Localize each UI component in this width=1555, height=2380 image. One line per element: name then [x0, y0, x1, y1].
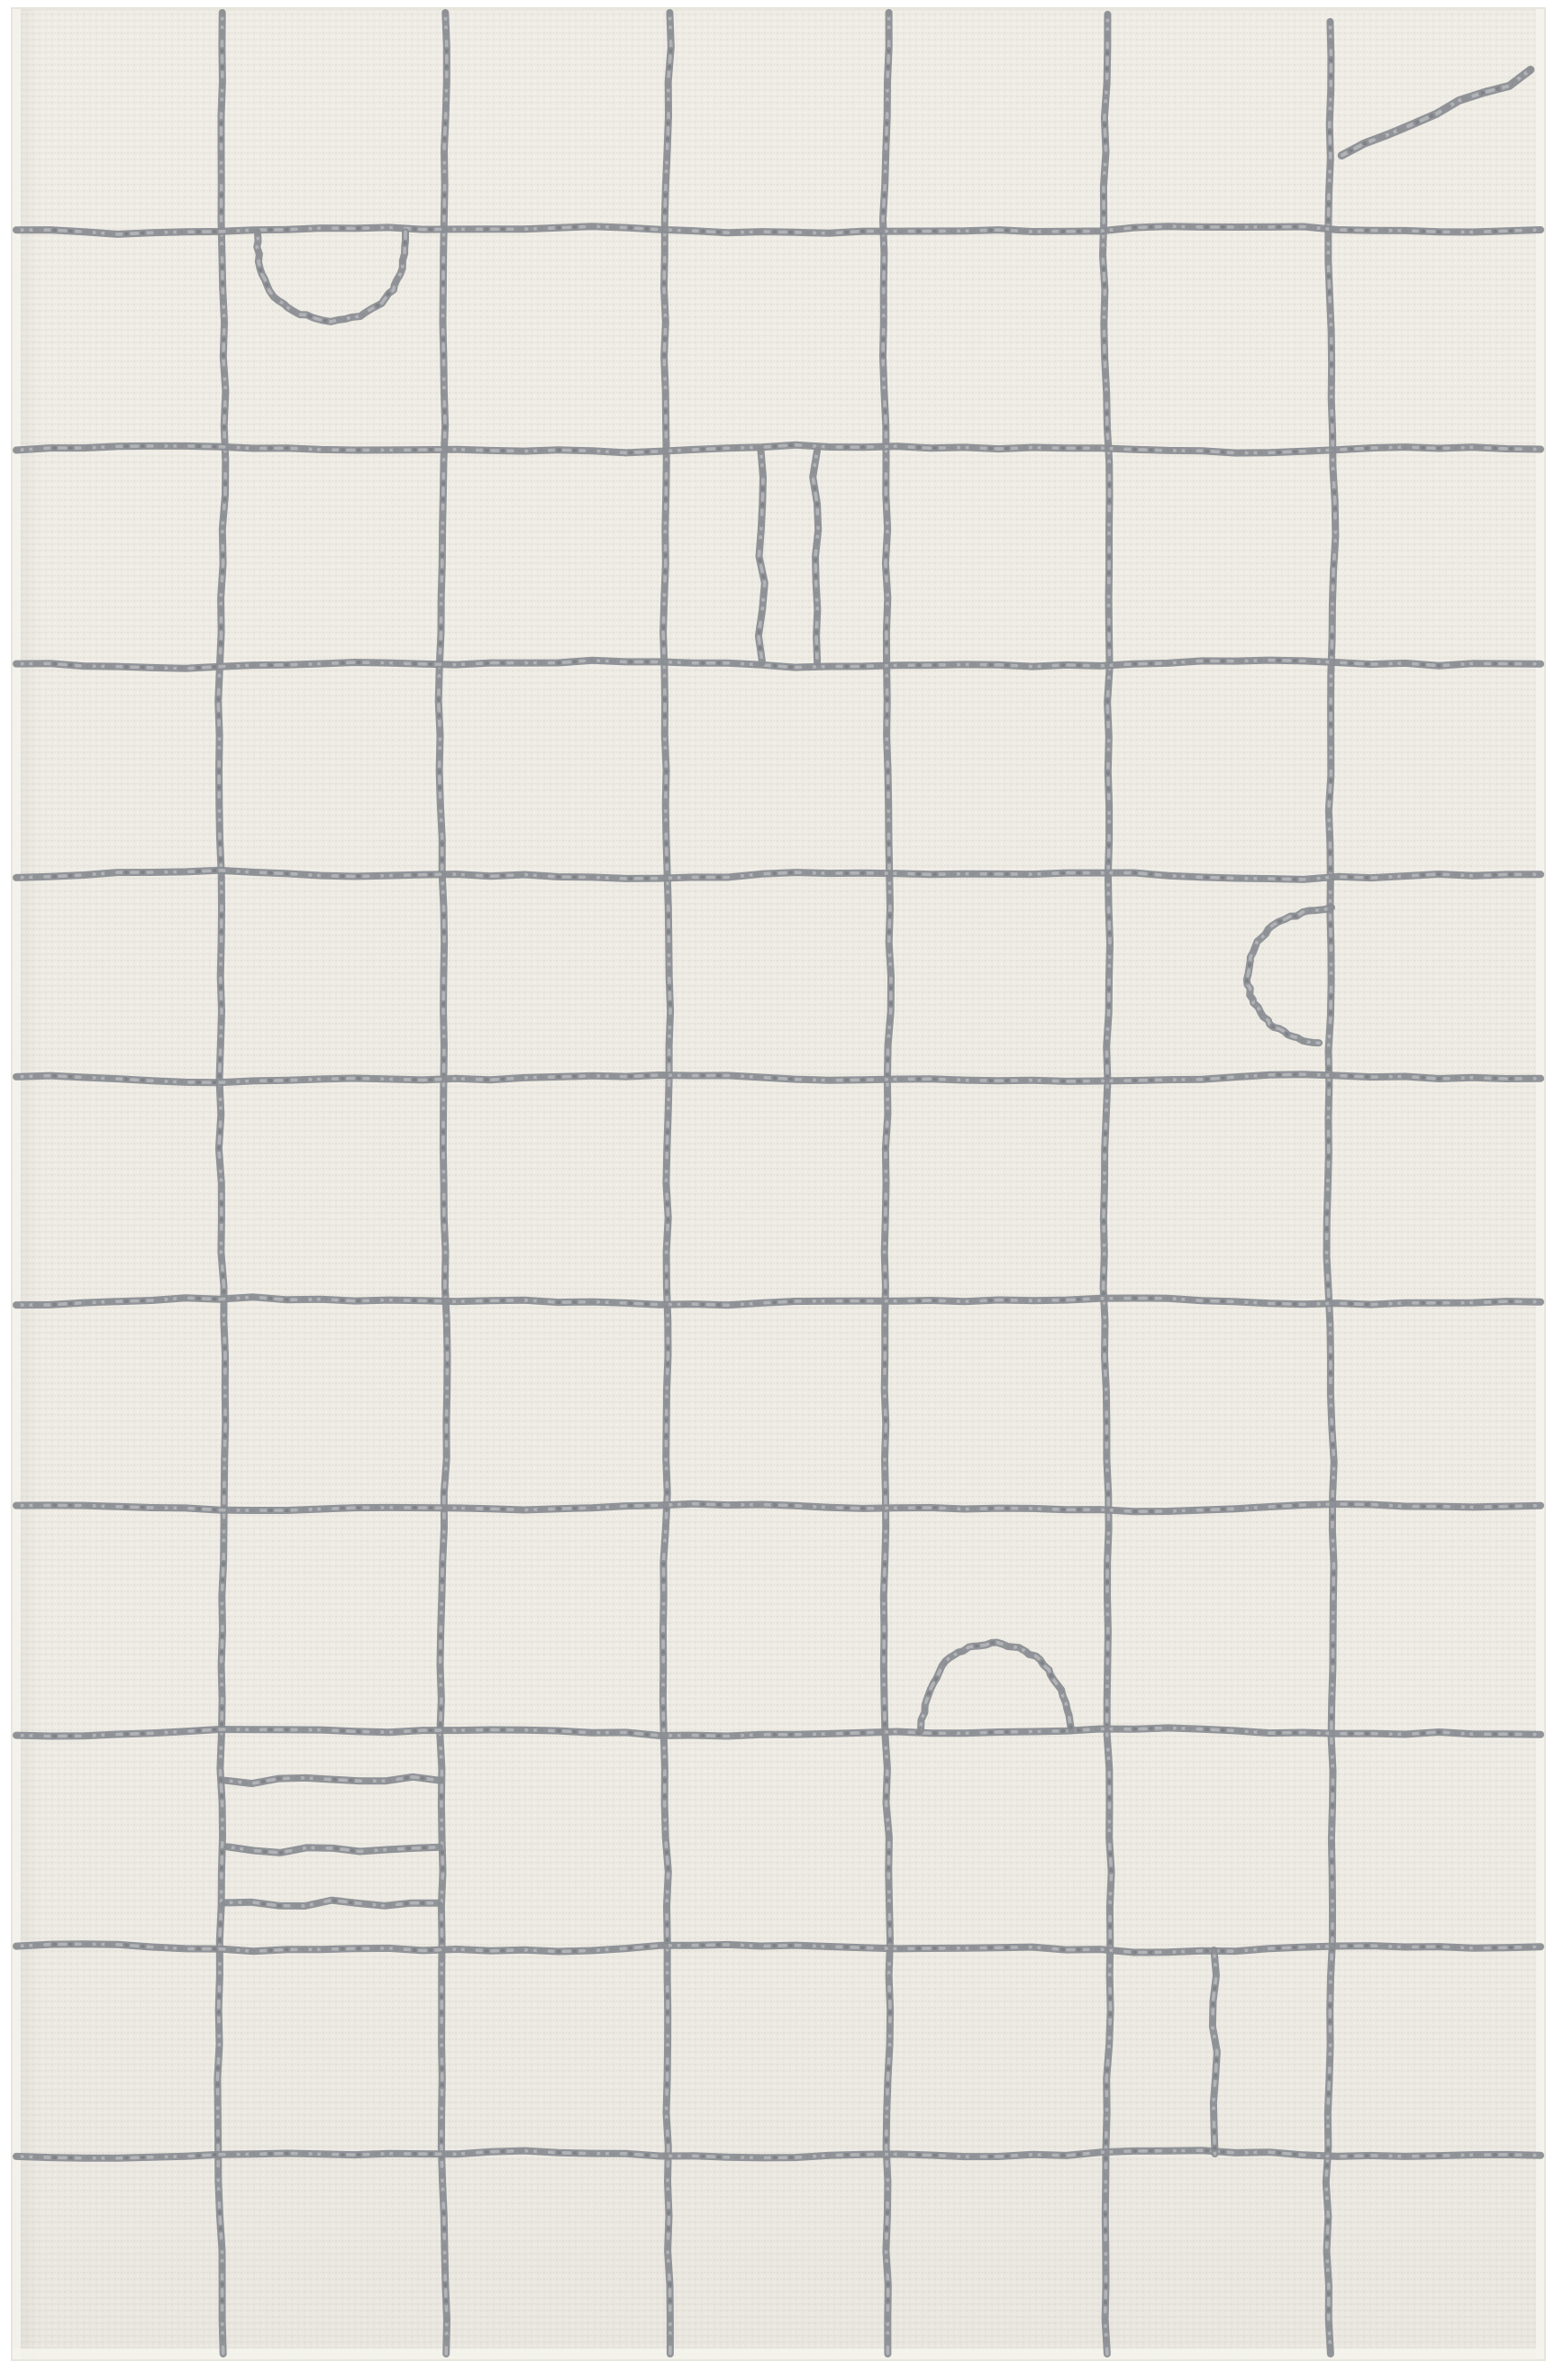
rug-canvas	[0, 0, 1555, 2380]
selvage-left	[13, 9, 21, 2359]
rug-product-photo	[0, 0, 1555, 2380]
selvage-bottom	[13, 2348, 1544, 2359]
rug-body	[13, 9, 1544, 2359]
selvage-right	[1536, 9, 1544, 2359]
